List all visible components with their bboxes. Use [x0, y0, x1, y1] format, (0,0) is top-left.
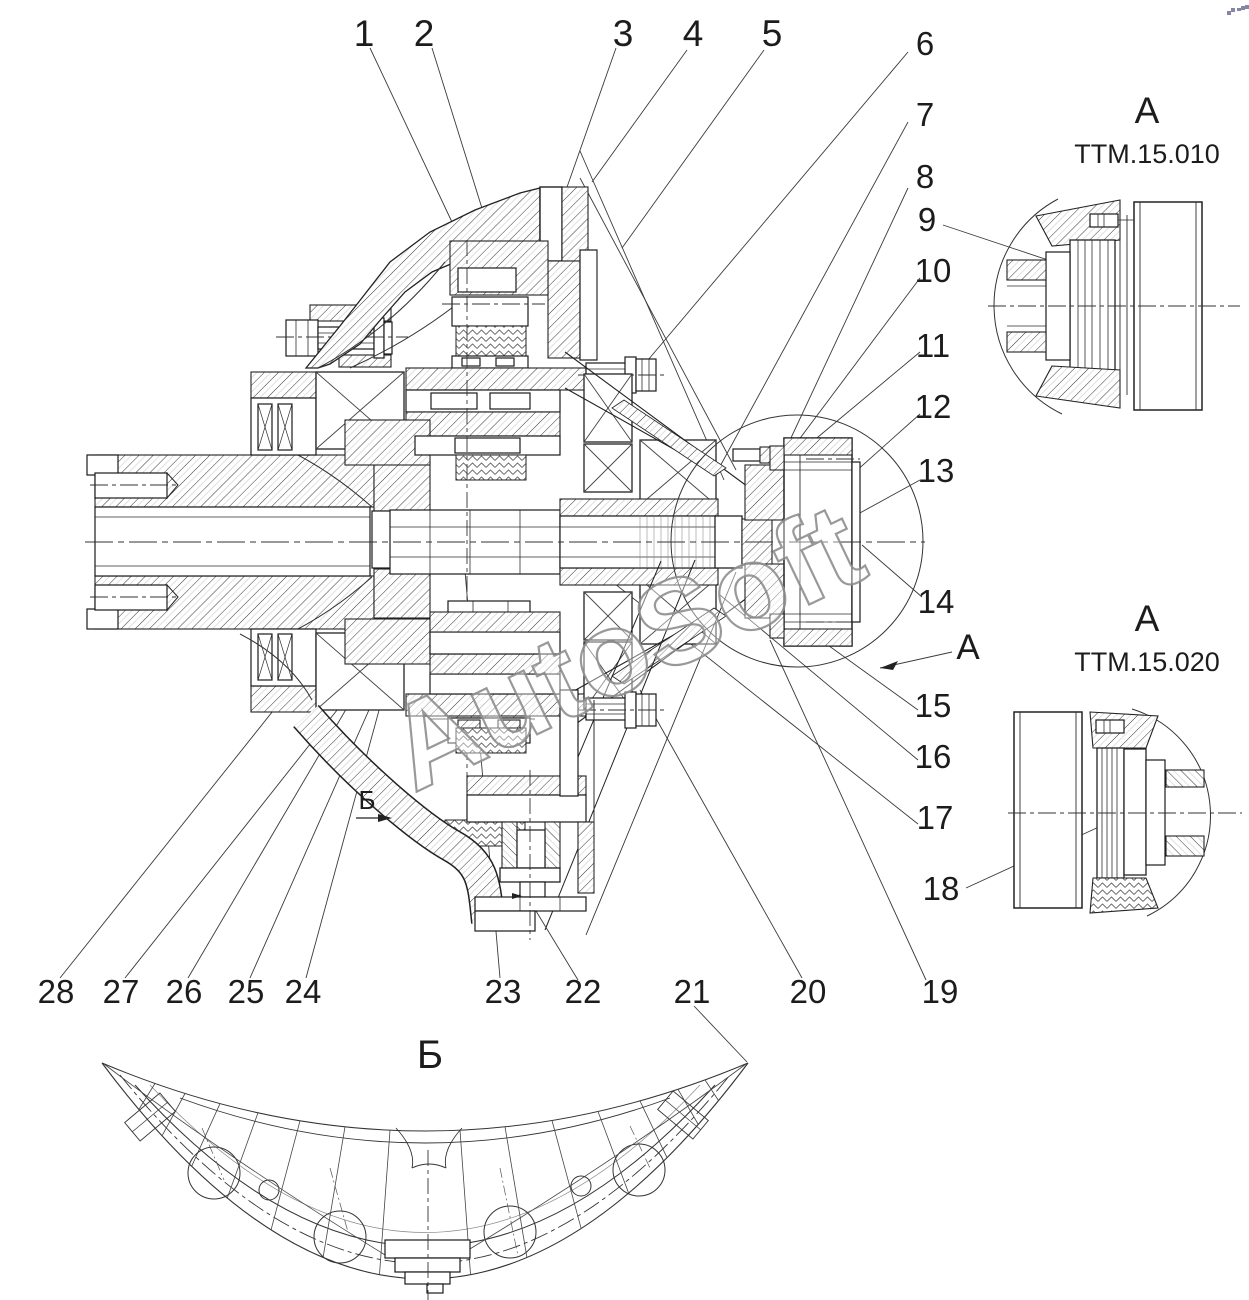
svg-text:13: 13	[918, 452, 955, 489]
svg-text:11: 11	[916, 327, 950, 364]
svg-text:А: А	[956, 628, 980, 667]
svg-text:А: А	[1135, 598, 1160, 639]
svg-text:17: 17	[917, 799, 954, 836]
svg-text:5: 5	[762, 13, 783, 54]
svg-text:Б: Б	[417, 1033, 443, 1077]
svg-text:21: 21	[674, 973, 711, 1010]
svg-text:8: 8	[916, 158, 934, 195]
svg-text:4: 4	[683, 13, 704, 54]
svg-text:3: 3	[613, 13, 634, 54]
svg-text:16: 16	[915, 738, 952, 775]
svg-text:15: 15	[915, 687, 952, 724]
svg-text:ТТМ.15.020: ТТМ.15.020	[1074, 647, 1220, 677]
svg-text:26: 26	[166, 973, 203, 1010]
svg-text:23: 23	[485, 973, 522, 1010]
svg-text:18: 18	[923, 870, 960, 907]
svg-text:25: 25	[228, 973, 265, 1010]
svg-text:12: 12	[915, 388, 952, 425]
svg-text:7: 7	[916, 96, 934, 133]
svg-text:ТТМ.15.010: ТТМ.15.010	[1074, 139, 1220, 169]
svg-text:А: А	[1135, 90, 1160, 131]
svg-text:1: 1	[354, 13, 375, 54]
svg-text:9: 9	[918, 201, 936, 238]
svg-text:19: 19	[922, 973, 959, 1010]
svg-text:27: 27	[103, 973, 140, 1010]
svg-text:14: 14	[918, 583, 955, 620]
svg-text:22: 22	[565, 973, 602, 1010]
svg-text:2: 2	[414, 13, 435, 54]
svg-text:Б: Б	[358, 785, 375, 815]
svg-text:10: 10	[915, 252, 952, 289]
svg-text:6: 6	[916, 25, 934, 62]
svg-text:24: 24	[285, 973, 322, 1010]
svg-text:28: 28	[38, 973, 75, 1010]
svg-text:20: 20	[790, 973, 827, 1010]
